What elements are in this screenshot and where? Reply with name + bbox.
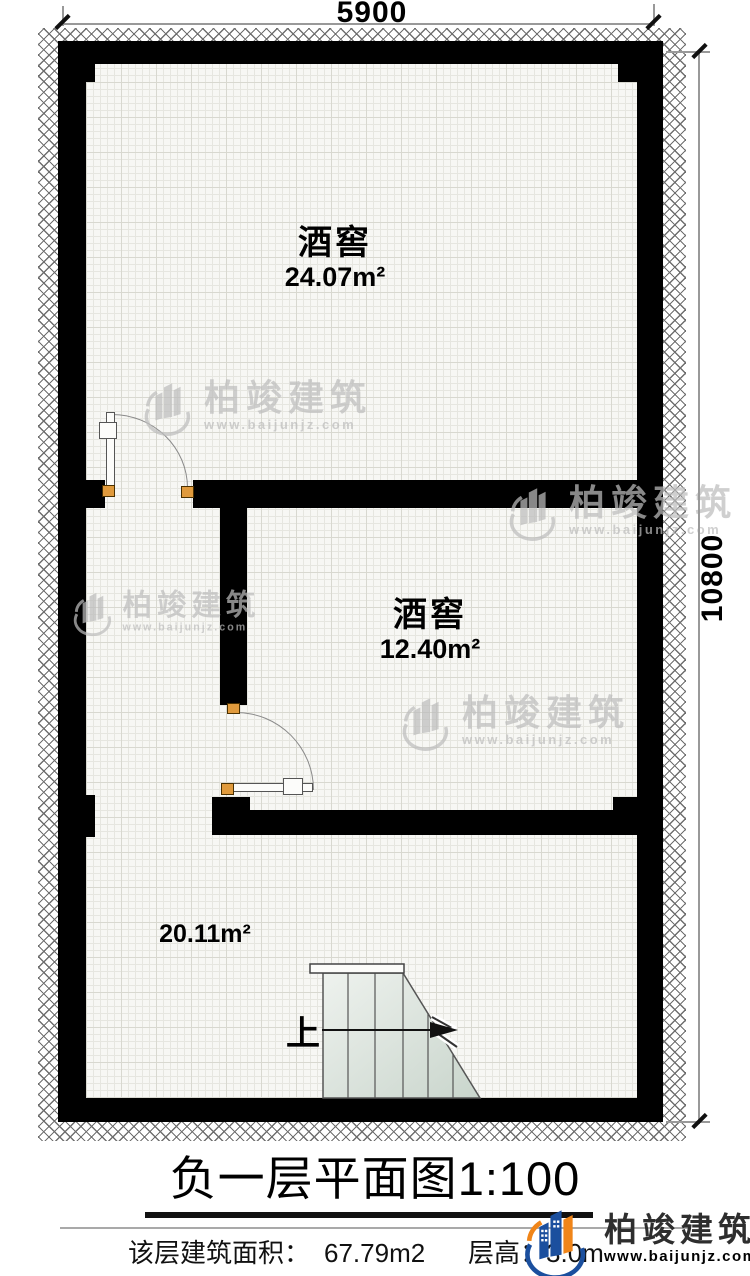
door1-hinge: [102, 485, 115, 497]
staircase: [285, 945, 615, 1105]
pier-corner-top-left: [86, 64, 95, 82]
dimension-top-value: 5900: [322, 0, 422, 30]
wall-room1-main: [193, 480, 637, 508]
title-scale: 1:100: [458, 1152, 581, 1205]
pier-corner-top-right: [618, 64, 637, 82]
wall-room1-left-stub: [58, 480, 105, 508]
room1-label: 酒窖 24.07m²: [235, 224, 435, 292]
area3-label: 20.11m²: [130, 920, 280, 949]
door2-handle: [283, 778, 303, 795]
stair-up-label: 上: [286, 1006, 320, 1055]
pier-lower-right: [613, 797, 637, 811]
pier-lower-left: [212, 797, 250, 811]
brand-url: www.baijunjz.com: [604, 1248, 750, 1266]
wall-lower-main: [212, 810, 637, 835]
wall-vertical-partition: [220, 480, 247, 705]
floor-area-label: 该层建筑面积：: [128, 1238, 310, 1268]
brand-logo-icon: [512, 1202, 600, 1276]
stair-landing-edge: [310, 964, 404, 973]
floor-plan-page: 上 酒窖 24.07m² 酒窖 12.40m² 20.11m² 柏竣建筑 www…: [0, 0, 750, 1276]
pier-left-wall: [58, 795, 95, 837]
room1-area: 24.07m²: [235, 262, 435, 292]
stair-body: [323, 973, 480, 1098]
dimension-right-value: 10800: [696, 523, 730, 633]
floor-area-info: 该层建筑面积：67.79m2: [128, 1233, 425, 1270]
room2-area: 12.40m²: [330, 634, 530, 664]
extension-line: [666, 1121, 710, 1123]
brand-logo: 柏竣建筑 www.baijunjz.com: [512, 1202, 750, 1276]
floor-area-value: 67.79m2: [324, 1238, 425, 1268]
door2-jamb-plate: [227, 703, 240, 714]
room2-label: 酒窖 12.40m²: [330, 596, 530, 664]
door1-jamb-plate: [181, 486, 194, 498]
door2-hinge: [221, 783, 234, 795]
brand-name: 柏竣建筑: [604, 1212, 750, 1248]
room1-name: 酒窖: [235, 224, 435, 262]
title-name: 负一层平面图: [170, 1152, 458, 1205]
room2-name: 酒窖: [330, 596, 530, 634]
page-title: 负一层平面图1:100: [0, 1140, 750, 1209]
extension-line: [666, 51, 710, 53]
door1-handle: [99, 422, 117, 439]
